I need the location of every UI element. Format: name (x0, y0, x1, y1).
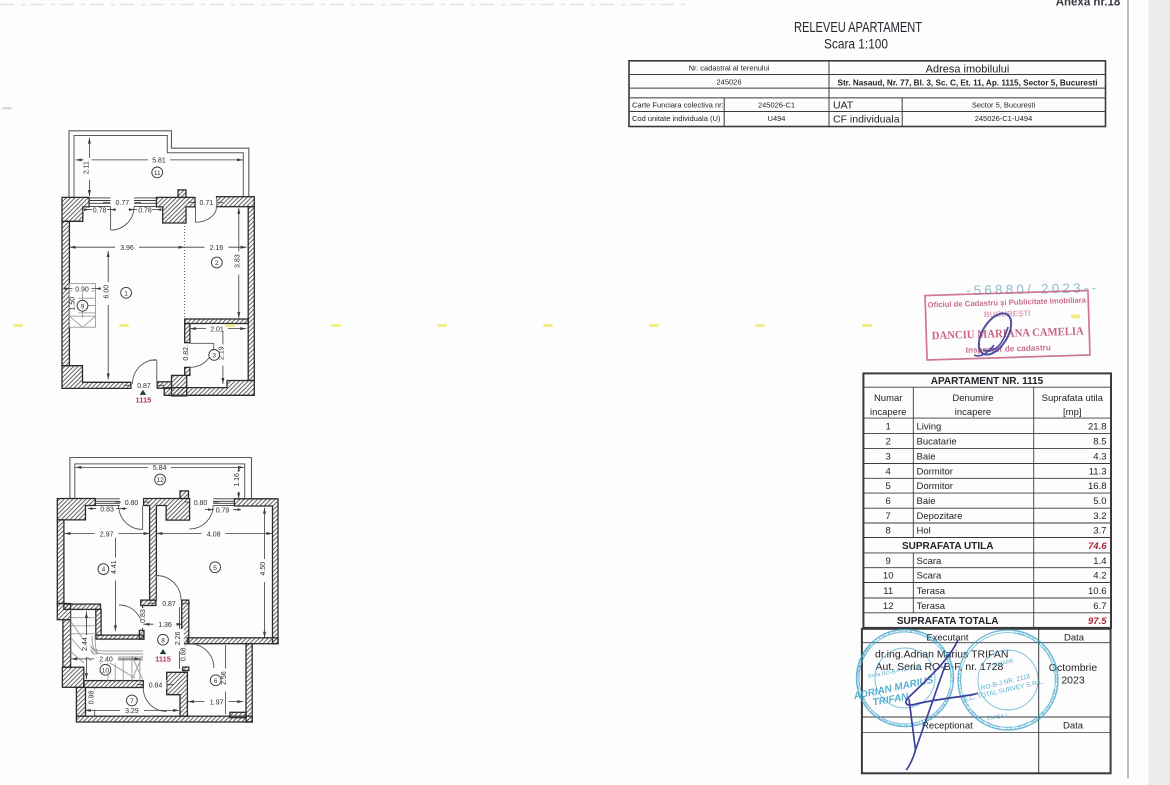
svg-text:6: 6 (214, 678, 218, 685)
svg-text:0.79: 0.79 (216, 508, 230, 515)
svg-text:0.83: 0.83 (100, 507, 114, 514)
svg-text:RELEVEU APARTAMENT: RELEVEU APARTAMENT (794, 19, 922, 36)
svg-text:incapere: incapere (955, 407, 991, 418)
svg-text:0.80: 0.80 (194, 500, 208, 507)
svg-text:2.44: 2.44 (82, 637, 89, 651)
svg-text:1115: 1115 (135, 396, 151, 405)
svg-text:0.87: 0.87 (137, 383, 151, 390)
svg-text:3.83: 3.83 (234, 254, 241, 268)
svg-text:2: 2 (886, 437, 891, 448)
svg-text:0.78: 0.78 (93, 208, 107, 215)
svg-text:Terasa: Terasa (917, 601, 946, 612)
svg-text:10.6: 10.6 (1088, 586, 1107, 597)
svg-text:7: 7 (130, 698, 134, 705)
svg-text:Sector 5, Bucuresti: Sector 5, Bucuresti (972, 101, 1036, 110)
svg-text:0.71: 0.71 (199, 200, 213, 207)
svg-text:Bucatarie: Bucatarie (917, 437, 957, 448)
svg-text:2023: 2023 (1061, 675, 1085, 687)
svg-text:Depozitare: Depozitare (917, 511, 963, 522)
svg-text:245026-C1: 245026-C1 (758, 101, 795, 110)
svg-text:0.84: 0.84 (149, 682, 163, 689)
svg-text:6.00: 6.00 (104, 285, 111, 299)
svg-text:4.08: 4.08 (207, 531, 221, 538)
svg-text:0.88: 0.88 (181, 647, 188, 661)
svg-text:2.56: 2.56 (221, 671, 228, 685)
svg-text:74.6: 74.6 (1088, 541, 1107, 552)
svg-text:10: 10 (883, 571, 894, 582)
svg-text:3.96: 3.96 (120, 245, 134, 252)
svg-text:97.5: 97.5 (1088, 616, 1107, 627)
svg-text:3.29: 3.29 (125, 708, 139, 715)
svg-text:4.50: 4.50 (260, 562, 267, 576)
svg-text:2.26: 2.26 (175, 631, 182, 645)
svg-text:7: 7 (886, 511, 891, 522)
svg-text:Baie: Baie (917, 496, 936, 507)
svg-text:2.11: 2.11 (84, 161, 91, 174)
svg-text:5.0: 5.0 (1093, 496, 1106, 507)
svg-text:Str. Nasaud, Nr. 77, Bl. 3, Sc: Str. Nasaud, Nr. 77, Bl. 3, Sc. C, Et. 1… (838, 78, 1098, 88)
svg-text:Hol: Hol (917, 526, 931, 537)
svg-text:2.97: 2.97 (100, 531, 114, 538)
svg-text:4.2: 4.2 (1093, 571, 1106, 582)
svg-text:[mp]: [mp] (1063, 407, 1081, 418)
svg-text:Scara: Scara (917, 556, 943, 567)
svg-text:SUPRAFATA UTILA: SUPRAFATA UTILA (902, 541, 993, 552)
svg-text:3.2: 3.2 (1093, 511, 1106, 522)
svg-text:Scara: Scara (917, 571, 943, 582)
svg-text:2.40: 2.40 (99, 657, 113, 664)
svg-text:Terasa: Terasa (917, 586, 946, 597)
svg-text:Numar: Numar (874, 393, 903, 404)
svg-text:Scara 1:100: Scara 1:100 (824, 36, 888, 52)
svg-text:8: 8 (161, 637, 165, 644)
svg-text:APARTAMENT NR. 1115: APARTAMENT NR. 1115 (931, 376, 1044, 387)
svg-text:CF individuala: CF individuala (833, 114, 900, 126)
svg-text:245026: 245026 (716, 78, 741, 87)
svg-text:4.3: 4.3 (1093, 452, 1106, 463)
svg-text:1.50: 1.50 (70, 297, 77, 311)
svg-text:12: 12 (156, 477, 164, 484)
svg-text:9: 9 (886, 556, 891, 567)
svg-text:Receptionat: Receptionat (922, 721, 973, 732)
svg-text:6: 6 (886, 496, 891, 507)
svg-text:6.7: 6.7 (1093, 601, 1106, 612)
svg-text:U494: U494 (768, 114, 786, 123)
svg-text:9: 9 (81, 303, 85, 310)
svg-text:0.82: 0.82 (183, 347, 190, 361)
svg-text:1.4: 1.4 (1093, 556, 1106, 567)
svg-text:2.01: 2.01 (210, 326, 224, 333)
svg-text:0.98: 0.98 (89, 691, 96, 705)
svg-text:11.3: 11.3 (1089, 466, 1107, 477)
svg-text:16.8: 16.8 (1088, 481, 1107, 492)
svg-text:Cod unitate individuala (U): Cod unitate individuala (U) (632, 114, 721, 123)
svg-text:5.84: 5.84 (153, 465, 167, 472)
svg-text:4: 4 (102, 567, 106, 574)
svg-text:Adresa imobilului: Adresa imobilului (926, 64, 1010, 76)
svg-text:2: 2 (215, 260, 219, 267)
svg-text:0.90: 0.90 (75, 287, 89, 294)
svg-text:1: 1 (124, 290, 128, 297)
svg-text:8: 8 (886, 526, 891, 537)
svg-text:Carte Funciara colectiva nr:: Carte Funciara colectiva nr: (632, 101, 724, 110)
svg-text:0.83: 0.83 (140, 609, 147, 623)
svg-text:11: 11 (883, 586, 893, 597)
svg-text:SUPRAFATA TOTALA: SUPRAFATA TOTALA (897, 616, 999, 627)
svg-text:11: 11 (154, 170, 161, 177)
svg-text:Living: Living (917, 422, 942, 433)
svg-text:2.16: 2.16 (210, 245, 224, 252)
svg-text:1.36: 1.36 (158, 622, 172, 629)
svg-text:4.41: 4.41 (111, 560, 118, 574)
svg-text:incapere: incapere (870, 407, 906, 418)
svg-text:Baie: Baie (917, 452, 936, 463)
svg-text:3: 3 (212, 353, 216, 360)
svg-text:1.16: 1.16 (234, 473, 241, 487)
svg-text:21.8: 21.8 (1088, 422, 1107, 433)
svg-text:3: 3 (886, 452, 891, 463)
svg-text:5.81: 5.81 (152, 158, 166, 165)
svg-text:1.97: 1.97 (210, 699, 224, 706)
svg-text:3.7: 3.7 (1093, 526, 1106, 537)
svg-text:1115: 1115 (155, 655, 171, 664)
svg-text:0.78: 0.78 (138, 208, 152, 215)
svg-text:Data: Data (1063, 721, 1084, 732)
svg-text:Dormitor: Dormitor (917, 466, 953, 477)
svg-text:Denumire: Denumire (952, 393, 993, 404)
svg-text:Anexa nr.18: Anexa nr.18 (1056, 0, 1121, 9)
svg-text:0.77: 0.77 (115, 200, 129, 207)
svg-text:5: 5 (213, 565, 217, 572)
svg-text:245026-C1-U494: 245026-C1-U494 (975, 114, 1033, 123)
svg-text:Nr. cadastral al terenului: Nr. cadastral al terenului (689, 64, 770, 73)
svg-text:Dormitor: Dormitor (917, 481, 953, 492)
svg-text:UAT: UAT (833, 100, 854, 112)
svg-text:4: 4 (886, 466, 891, 477)
svg-text:Suprafata utila: Suprafata utila (1042, 393, 1104, 404)
svg-text:0.80: 0.80 (125, 500, 139, 507)
svg-text:0.87: 0.87 (162, 601, 176, 608)
svg-text:8.5: 8.5 (1093, 437, 1106, 448)
svg-text:5: 5 (886, 481, 891, 492)
svg-text:1: 1 (886, 422, 891, 433)
svg-text:10: 10 (102, 667, 110, 674)
svg-text:Data: Data (1064, 633, 1085, 644)
svg-text:12: 12 (883, 601, 894, 612)
